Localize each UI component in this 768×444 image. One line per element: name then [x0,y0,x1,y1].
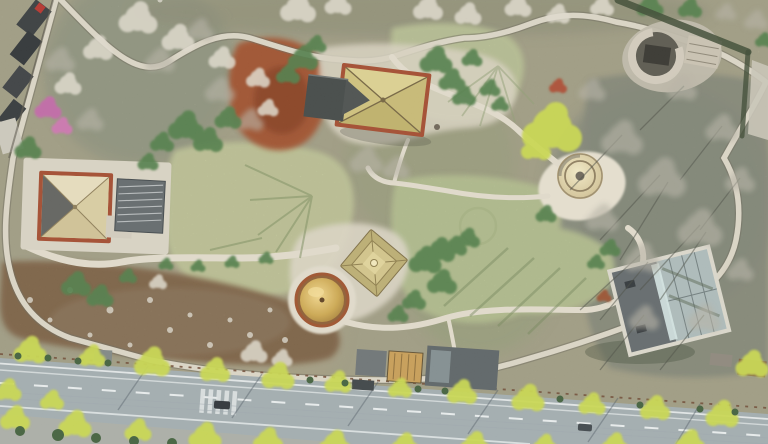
aerial-park-photo [0,0,768,444]
park-scene [0,0,768,444]
grain-light [0,0,768,444]
